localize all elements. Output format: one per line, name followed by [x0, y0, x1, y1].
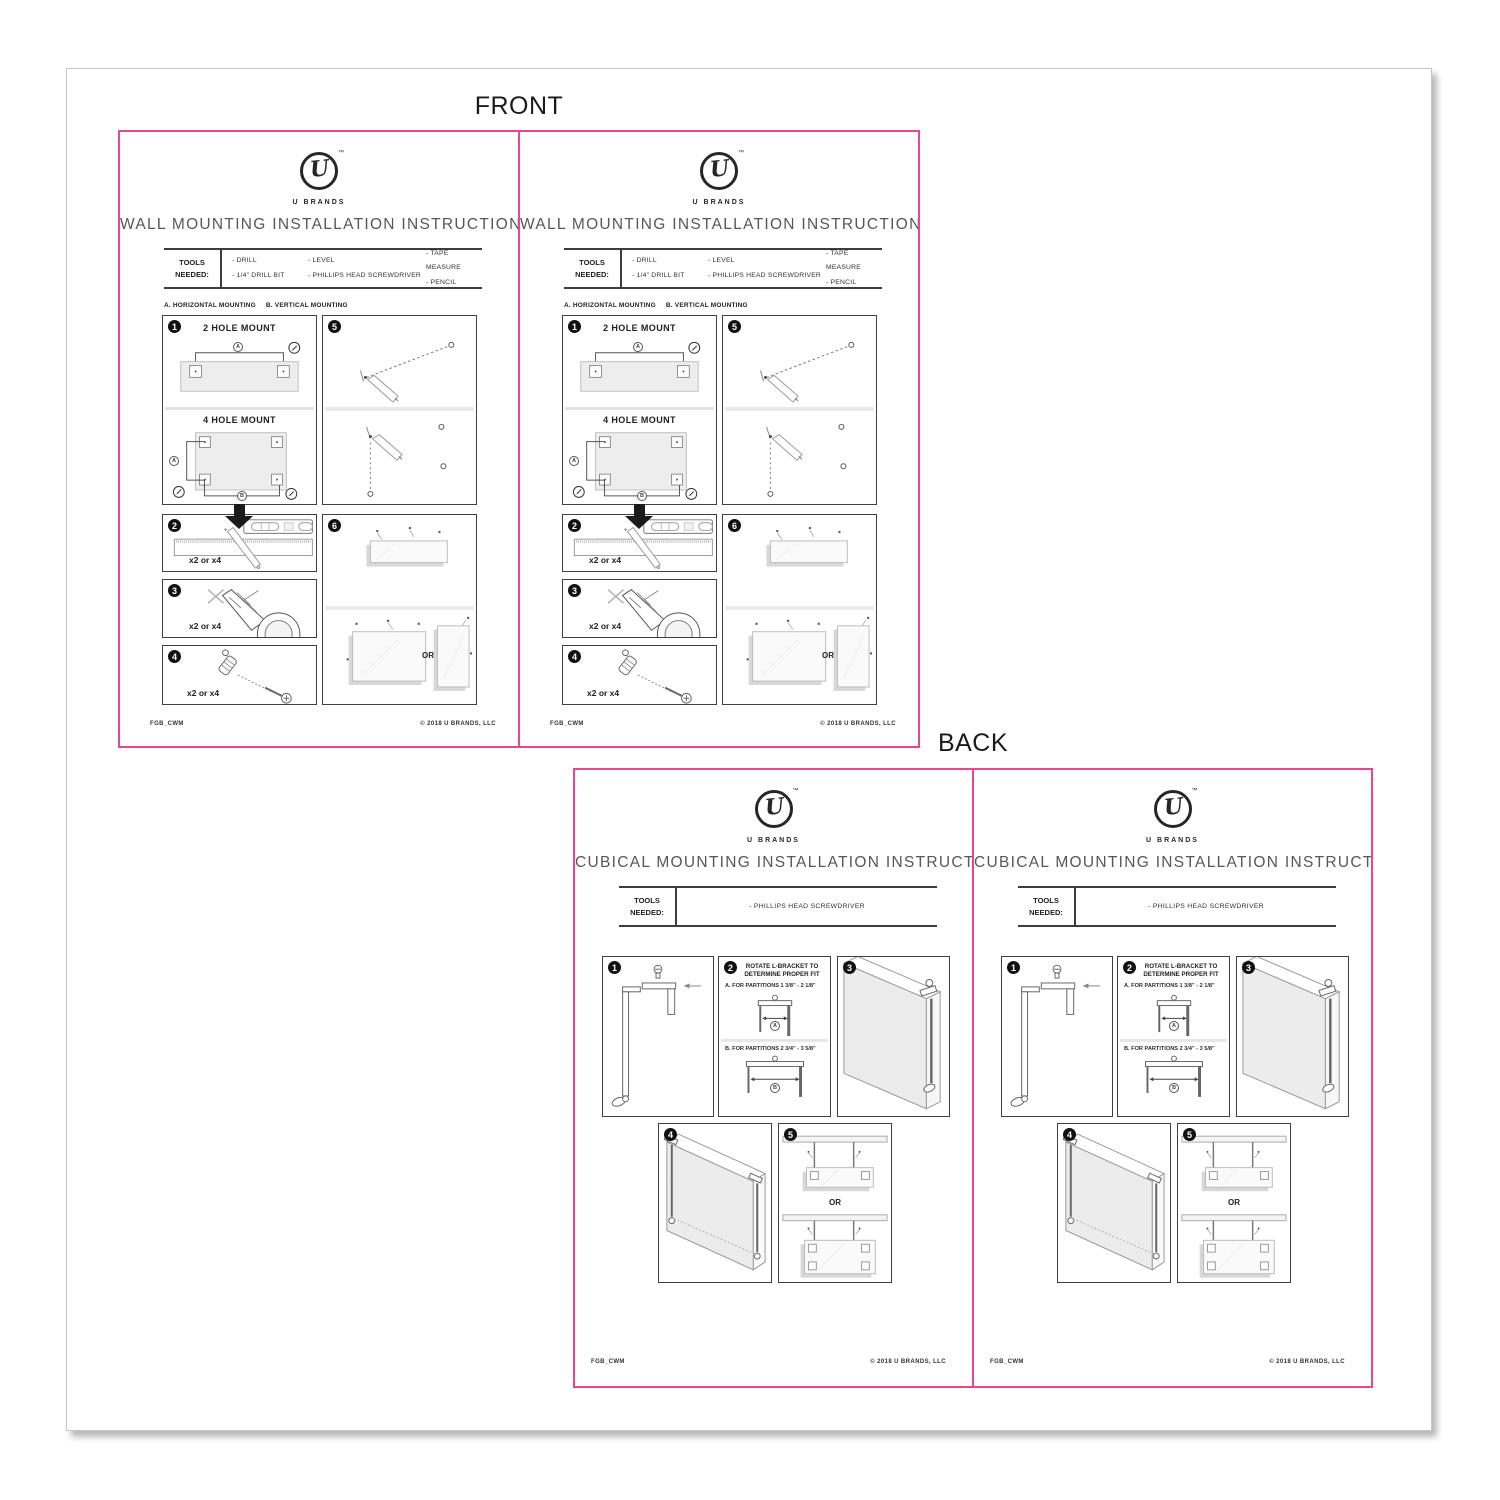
dimension-a-marker: A: [233, 342, 243, 352]
dimension-b-marker: B: [770, 1083, 780, 1093]
or-label: OR: [779, 1198, 891, 1207]
tool-item: - 1/4" DRILL BIT: [632, 269, 708, 283]
step-4-number: 4: [1063, 1128, 1076, 1141]
glass-board-portrait: [434, 626, 470, 691]
tool-item: - PENCIL: [826, 276, 882, 290]
sheet-title: WALL MOUNTING INSTALLATION INSTRUCTIONS: [520, 216, 918, 234]
pencil-mark-icon: [689, 342, 700, 353]
step-4-panel: 4 x2 or x4: [562, 645, 717, 705]
step-2-number: 2: [1123, 961, 1136, 974]
wall-mounting-sheet: U ™ U BRANDS WALL MOUNTING INSTALLATION …: [120, 132, 518, 746]
tools-needed-table: TOOLS NEEDED: - PHILLIPS HEAD SCREWDRIVE…: [1018, 886, 1336, 927]
drill-hole-diagram: [563, 580, 716, 637]
step-5-panel: 5: [722, 315, 877, 505]
step-3-panel: 3: [837, 956, 950, 1117]
partition-option-a: A. FOR PARTITIONS 1 3/8" - 2 1/8": [725, 983, 816, 989]
drill-hole-diagram: [163, 580, 316, 637]
tools-needed-label: TOOLS NEEDED:: [619, 888, 677, 925]
or-label: OR: [1178, 1198, 1290, 1207]
u-brands-wordmark: U BRANDS: [575, 837, 972, 844]
drill-bit-icon: [623, 590, 700, 637]
u-brands-monogram: U: [309, 155, 331, 183]
tool-item: - PHILLIPS HEAD SCREWDRIVER: [308, 269, 426, 283]
level-tool-icon: [644, 520, 713, 534]
footer-copyright: © 2018 U BRANDS, LLC: [820, 721, 896, 727]
step-4-panel: 4: [1057, 1123, 1171, 1283]
l-bracket-assembly-diagram: [603, 957, 713, 1116]
u-brands-logo-mark: U ™: [755, 790, 793, 828]
l-bracket-rod: [1022, 987, 1040, 1096]
mounting-orientation-note: A. HORIZONTAL MOUNTING B. VERTICAL MOUNT…: [164, 302, 348, 309]
tool-item: - PENCIL: [426, 276, 482, 290]
u-brands-logo-mark: U ™: [700, 152, 738, 190]
tool-item: - PHILLIPS HEAD SCREWDRIVER: [677, 888, 937, 925]
step-1-number: 1: [568, 320, 581, 333]
footer-part-number: FGB_CWM: [591, 1359, 625, 1365]
trademark-symbol: ™: [793, 788, 799, 794]
two-brackets-on-partition-diagram: [659, 1124, 771, 1282]
footer-copyright: © 2018 U BRANDS, LLC: [870, 1359, 946, 1365]
glass-board-large: [1200, 1240, 1275, 1277]
step-2-panel: 2 ROTATE L-BRACKET TO DETERMINE PROPER F…: [1117, 956, 1230, 1117]
tool-item: - DRILL: [632, 254, 708, 268]
sheet-footer: FGB_CWM © 2018 U BRANDS, LLC: [591, 1359, 946, 1365]
partition-option-b: B. FOR PARTITIONS 2 3/4" - 3 5/8": [1124, 1046, 1215, 1052]
step-4-panel: 4: [658, 1123, 772, 1283]
step-1-panel: 1 2 HOLE MOUNT A 4 HOLE MOUNT A B: [562, 315, 717, 505]
glass-board-small: [1202, 1168, 1273, 1192]
dimension-a-marker: A: [770, 1021, 780, 1031]
rotate-bracket-heading: ROTATE L-BRACKET TO DETERMINE PROPER FIT: [737, 963, 827, 980]
step-1-number: 1: [168, 320, 181, 333]
tool-item: - 1/4" DRILL BIT: [232, 269, 308, 283]
wall-anchor-icon: [218, 655, 238, 676]
footer-copyright: © 2018 U BRANDS, LLC: [420, 721, 496, 727]
step-6-panel: 6 OR: [722, 514, 877, 705]
rotate-heading-line1: ROTATE L-BRACKET TO: [1136, 963, 1226, 971]
pencil-mark-icon: [286, 488, 297, 499]
wing-nut-icon: [1010, 1096, 1028, 1108]
glass-board-small: [803, 1168, 874, 1192]
arrow-shaft: [234, 504, 245, 516]
horizontal-mounting-note: A. HORIZONTAL MOUNTING: [164, 302, 256, 309]
u-brands-wordmark: U BRANDS: [120, 199, 518, 206]
step-2-panel: 2 ROTATE L-BRACKET TO DETERMINE PROPER F…: [718, 956, 831, 1117]
bracket-on-partition-diagram: [1237, 957, 1348, 1116]
mounted-board-diagram: [723, 515, 876, 704]
glass-board-horizontal: [766, 541, 847, 567]
step-2-number: 2: [568, 519, 581, 532]
pencil-icon: [372, 435, 402, 461]
tools-needed-label: TOOLS NEEDED:: [164, 250, 222, 287]
trademark-symbol: ™: [1192, 788, 1198, 794]
l-bracket-assembly-diagram: [1002, 957, 1112, 1116]
step-3-number: 3: [843, 961, 856, 974]
two-hole-mount-heading: 2 HOLE MOUNT: [163, 323, 316, 333]
cubical-mounting-sheet-copy: U ™ U BRANDS CUBICAL MOUNTING INSTALLATI…: [974, 770, 1371, 1386]
footer-part-number: FGB_CWM: [990, 1359, 1024, 1365]
step-6-number: 6: [728, 519, 741, 532]
screw-icon: [654, 965, 662, 978]
trademark-symbol: ™: [738, 150, 744, 156]
down-arrow-icon: [225, 504, 253, 529]
sheet-footer: FGB_CWM © 2018 U BRANDS, LLC: [990, 1359, 1345, 1365]
step-5-number: 5: [328, 320, 341, 333]
step-4-number: 4: [568, 650, 581, 663]
tool-item: - TAPE MEASURE: [826, 247, 882, 276]
anchor-and-screw-diagram: [563, 646, 716, 704]
step-5-number: 5: [728, 320, 741, 333]
tool-item: - DRILL: [232, 254, 308, 268]
back-instruction-document: U ™ U BRANDS CUBICAL MOUNTING INSTALLATI…: [573, 768, 1373, 1388]
front-label: FRONT: [118, 92, 920, 121]
drill-bit-icon: [223, 590, 300, 637]
step-3-panel: 3 x2 or x4: [562, 579, 717, 638]
step-5-panel: 5 OR: [1177, 1123, 1291, 1283]
u-brands-logo-mark: U ™: [300, 152, 338, 190]
step-3-number: 3: [168, 584, 181, 597]
screw-icon: [1053, 965, 1061, 978]
step-5-number: 5: [1183, 1128, 1196, 1141]
two-hole-mount-heading: 2 HOLE MOUNT: [563, 323, 716, 333]
step-1-panel: 1: [602, 956, 714, 1117]
step-5-number: 5: [784, 1128, 797, 1141]
rotate-heading-line2: DETERMINE PROPER FIT: [1136, 971, 1226, 979]
tools-column-1: - DRILL - 1/4" DRILL BIT: [632, 254, 708, 283]
arrow-shaft: [634, 504, 645, 516]
step-3-panel: 3 x2 or x4: [162, 579, 317, 638]
wall-mounting-sheet-copy: U ™ U BRANDS WALL MOUNTING INSTALLATION …: [520, 132, 918, 746]
rotate-heading-line1: ROTATE L-BRACKET TO: [737, 963, 827, 971]
front-instruction-document: U ™ U BRANDS WALL MOUNTING INSTALLATION …: [118, 130, 920, 748]
pencil-icon: [367, 375, 398, 402]
dimension-b-marker: B: [1169, 1083, 1179, 1093]
pencil-mark-icon: [686, 488, 697, 499]
vertical-mounting-note: B. VERTICAL MOUNTING: [666, 302, 748, 309]
wall-anchor-icon: [618, 655, 638, 676]
tools-needed-table: TOOLS NEEDED: - DRILL - 1/4" DRILL BIT -…: [564, 248, 882, 289]
u-brands-logo: U ™ U BRANDS: [120, 152, 518, 206]
u-brands-logo: U ™ U BRANDS: [575, 790, 972, 844]
two-brackets-on-partition-diagram: [1058, 1124, 1170, 1282]
back-label: BACK: [573, 729, 1373, 758]
step-4-number: 4: [168, 650, 181, 663]
step-1-number: 1: [1007, 961, 1020, 974]
step-2-number: 2: [724, 961, 737, 974]
tool-item: - TAPE MEASURE: [426, 247, 482, 276]
u-brands-logo: U ™ U BRANDS: [520, 152, 918, 206]
dimension-b-marker: B: [237, 491, 247, 501]
dimension-a-marker: A: [169, 456, 179, 466]
tools-column-2: - LEVEL - PHILLIPS HEAD SCREWDRIVER: [308, 254, 426, 283]
tools-column-1: - DRILL - 1/4" DRILL BIT: [232, 254, 308, 283]
mounting-orientation-note: A. HORIZONTAL MOUNTING B. VERTICAL MOUNT…: [564, 302, 748, 309]
glass-board-large: [801, 1240, 876, 1277]
step-3-number: 3: [568, 584, 581, 597]
step-3-panel: 3: [1236, 956, 1349, 1117]
or-label: OR: [822, 651, 834, 660]
wing-nut-icon: [611, 1096, 629, 1108]
tool-item: - LEVEL: [708, 254, 826, 268]
step-5-panel: 5: [322, 315, 477, 505]
tool-item: - PHILLIPS HEAD SCREWDRIVER: [1076, 888, 1336, 925]
tools-column-2: - LEVEL - PHILLIPS HEAD SCREWDRIVER: [708, 254, 826, 283]
step-3-number: 3: [1242, 961, 1255, 974]
tools-list: - DRILL - 1/4" DRILL BIT - LEVEL - PHILL…: [222, 250, 482, 287]
quantity-label: x2 or x4: [587, 688, 619, 698]
u-brands-wordmark: U BRANDS: [520, 199, 918, 206]
glass-board-portrait: [834, 626, 870, 691]
step-4-number: 4: [664, 1128, 677, 1141]
pencil-mark-icon: [173, 487, 184, 498]
tools-column-3: - TAPE MEASURE - PENCIL: [426, 247, 482, 290]
screw-icon: [665, 688, 691, 703]
pencil-icon: [767, 375, 798, 402]
l-bracket-rod: [623, 987, 641, 1096]
l-bracket-small: [642, 983, 675, 1014]
rotate-bracket-heading: ROTATE L-BRACKET TO DETERMINE PROPER FIT: [1136, 963, 1226, 980]
rotate-heading-line2: DETERMINE PROPER FIT: [737, 971, 827, 979]
step-1-panel: 1: [1001, 956, 1113, 1117]
sheet-title: WALL MOUNTING INSTALLATION INSTRUCTIONS: [120, 216, 518, 234]
footer-part-number: FGB_CWM: [150, 721, 184, 727]
bracket-on-partition-diagram: [838, 957, 949, 1116]
u-brands-monogram: U: [763, 793, 785, 821]
step-1-panel: 1 2 HOLE MOUNT A 4 HOLE MOUNT A B: [162, 315, 317, 505]
anchor-and-screw-diagram: [163, 646, 316, 704]
quantity-label: x2 or x4: [187, 688, 219, 698]
u-brands-logo-mark: U ™: [1154, 790, 1192, 828]
tools-list: - DRILL - 1/4" DRILL BIT - LEVEL - PHILL…: [622, 250, 882, 287]
partition-option-a: A. FOR PARTITIONS 1 3/8" - 2 1/8": [1124, 983, 1215, 989]
partition-option-b: B. FOR PARTITIONS 2 3/4" - 3 5/8": [725, 1046, 816, 1052]
sheet-footer: FGB_CWM © 2018 U BRANDS, LLC: [150, 721, 496, 727]
four-hole-mount-heading: 4 HOLE MOUNT: [163, 415, 316, 425]
glass-board-horizontal: [366, 541, 447, 567]
dimension-a-marker: A: [633, 342, 643, 352]
dimension-a-marker: A: [569, 456, 579, 466]
arrow-head: [225, 516, 253, 529]
arrow-head: [625, 516, 653, 529]
horizontal-mounting-note: A. HORIZONTAL MOUNTING: [564, 302, 656, 309]
footer-copyright: © 2018 U BRANDS, LLC: [1269, 1359, 1345, 1365]
vertical-mounting-note: B. VERTICAL MOUNTING: [266, 302, 348, 309]
step-1-number: 1: [608, 961, 621, 974]
sheet-footer: FGB_CWM © 2018 U BRANDS, LLC: [550, 721, 896, 727]
step-4-panel: 4 x2 or x4: [162, 645, 317, 705]
cubical-mounting-sheet: U ™ U BRANDS CUBICAL MOUNTING INSTALLATI…: [575, 770, 972, 1386]
tool-item: - PHILLIPS HEAD SCREWDRIVER: [708, 269, 826, 283]
sheet-title: CUBICAL MOUNTING INSTALLATION INSTRUCTIO…: [974, 854, 1371, 872]
mounted-board-diagram: [323, 515, 476, 704]
dimension-a-marker: A: [1169, 1021, 1179, 1031]
tools-needed-table: TOOLS NEEDED: - PHILLIPS HEAD SCREWDRIVE…: [619, 886, 937, 927]
u-brands-wordmark: U BRANDS: [974, 837, 1371, 844]
tools-needed-label: TOOLS NEEDED:: [1018, 888, 1076, 925]
quantity-label: x2 or x4: [589, 621, 621, 631]
pencil-icon: [772, 435, 802, 461]
four-hole-mount-heading: 4 HOLE MOUNT: [563, 415, 716, 425]
step-5-panel: 5 OR: [778, 1123, 892, 1283]
step-6-panel: 6 OR: [322, 514, 477, 705]
or-label: OR: [422, 651, 434, 660]
sheet-title: CUBICAL MOUNTING INSTALLATION INSTRUCTIO…: [575, 854, 972, 872]
marking-wall-diagram: [323, 316, 476, 504]
footer-part-number: FGB_CWM: [550, 721, 584, 727]
pencil-mark-icon: [573, 487, 584, 498]
pencil-mark-icon: [289, 342, 300, 353]
tools-column-3: - TAPE MEASURE - PENCIL: [826, 247, 882, 290]
dimension-b-marker: B: [637, 491, 647, 501]
glass-board-landscape: [749, 632, 826, 685]
step-6-number: 6: [328, 519, 341, 532]
quantity-label: x2 or x4: [589, 555, 621, 565]
tools-needed-label: TOOLS NEEDED:: [564, 250, 622, 287]
screw-icon: [265, 688, 291, 703]
u-brands-monogram: U: [1162, 793, 1184, 821]
quantity-label: x2 or x4: [189, 555, 221, 565]
down-arrow-icon: [625, 504, 653, 529]
tools-needed-table: TOOLS NEEDED: - DRILL - 1/4" DRILL BIT -…: [164, 248, 482, 289]
trademark-symbol: ™: [338, 150, 344, 156]
u-brands-monogram: U: [709, 155, 731, 183]
marking-wall-diagram: [723, 316, 876, 504]
quantity-label: x2 or x4: [189, 621, 221, 631]
step-2-number: 2: [168, 519, 181, 532]
level-tool-icon: [244, 520, 313, 534]
u-brands-logo: U ™ U BRANDS: [974, 790, 1371, 844]
l-bracket-small: [1041, 983, 1074, 1014]
tool-item: - LEVEL: [308, 254, 426, 268]
glass-board-landscape: [349, 632, 426, 685]
